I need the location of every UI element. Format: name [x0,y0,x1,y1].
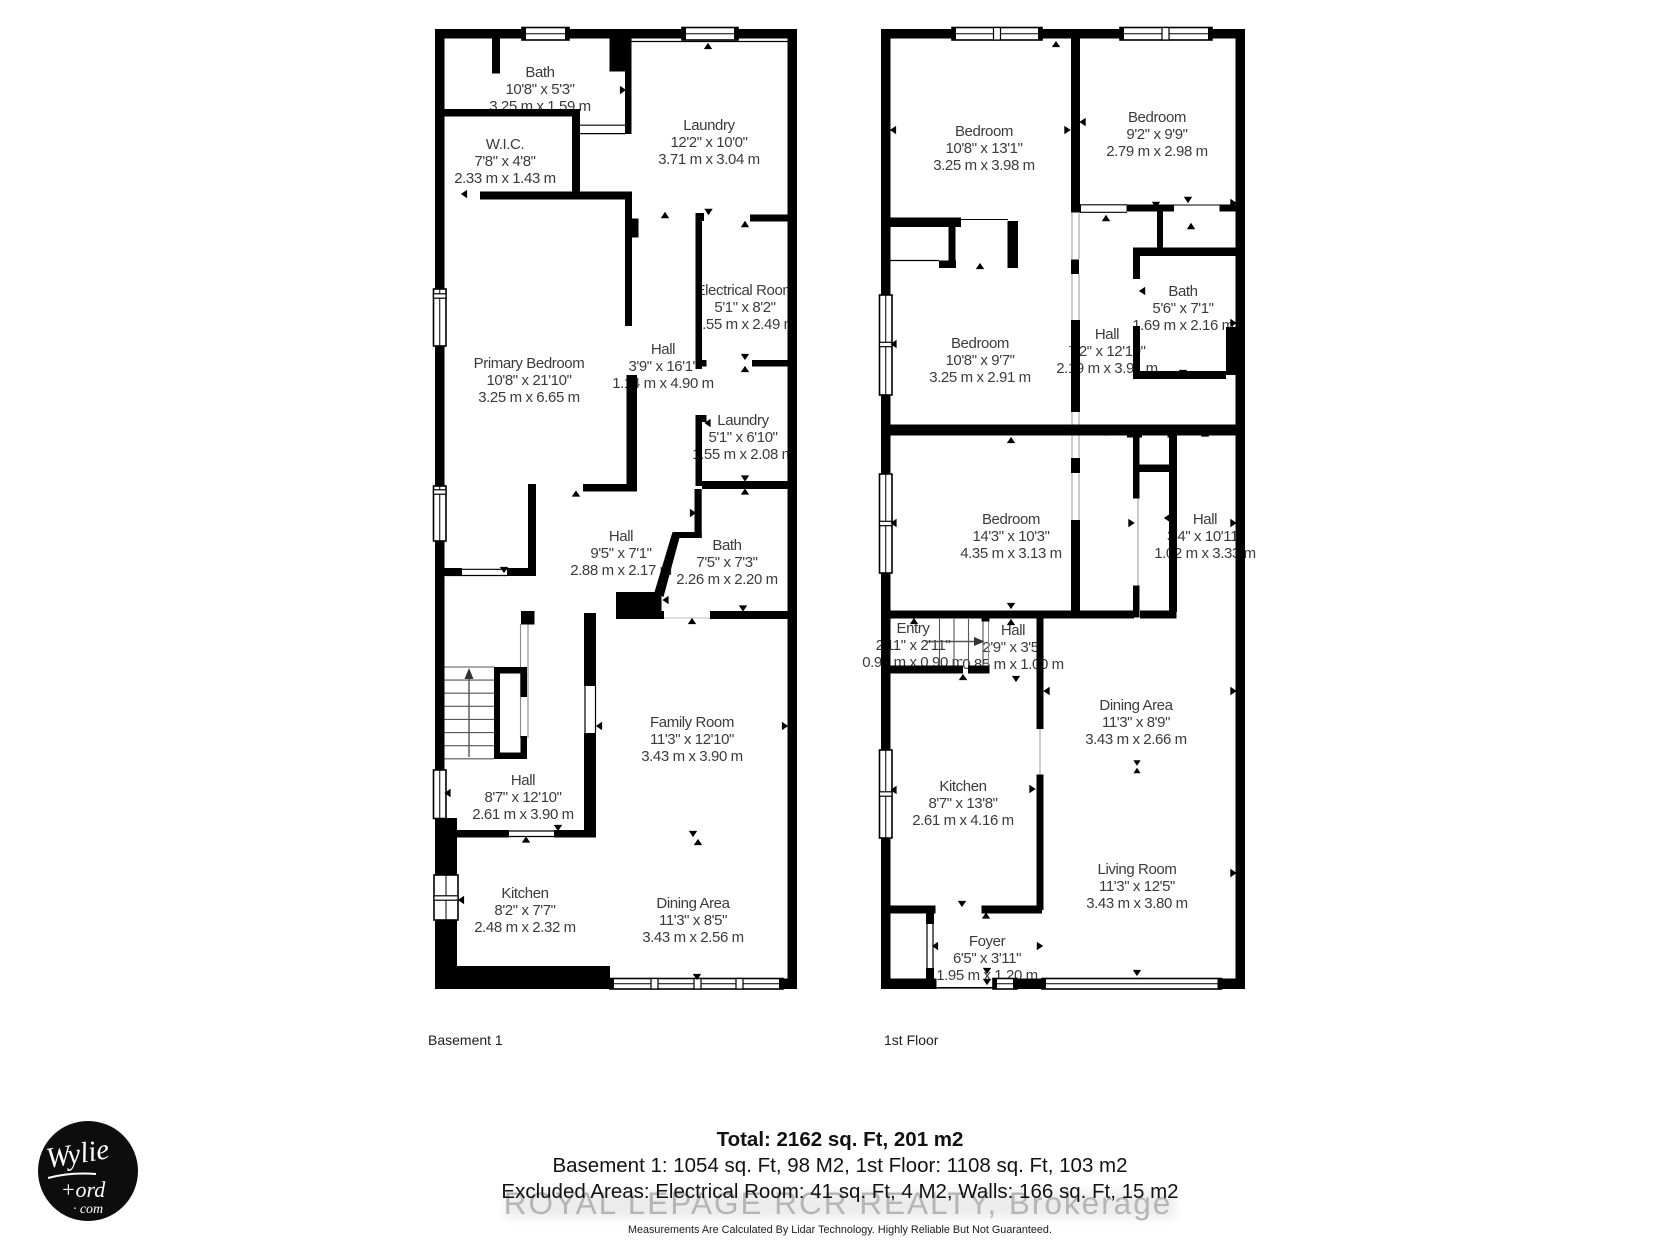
svg-text:1st Floor: 1st Floor [884,1032,939,1048]
svg-text:2'9" x 3'5": 2'9" x 3'5" [982,639,1043,656]
svg-text:Hall: Hall [651,341,675,358]
svg-text:2.48 m x 2.32 m: 2.48 m x 2.32 m [474,919,576,936]
svg-text:Primary Bedroom: Primary Bedroom [474,355,585,372]
svg-text:Family Room: Family Room [650,714,734,731]
svg-text:10'8" x 21'10": 10'8" x 21'10" [486,372,571,389]
svg-text:5'1" x 6'10": 5'1" x 6'10" [708,429,777,446]
svg-text:Hall: Hall [1193,511,1217,528]
svg-text:Living Room: Living Room [1098,861,1177,878]
svg-text:10'8" x 9'7": 10'8" x 9'7" [945,352,1014,369]
svg-text:5'1" x 8'2": 5'1" x 8'2" [714,299,775,316]
svg-text:1.55 m x 2.49 m: 1.55 m x 2.49 m [694,316,796,333]
svg-text:2.79 m x 2.98 m: 2.79 m x 2.98 m [1106,143,1208,160]
svg-text:Dining Area: Dining Area [1099,697,1173,714]
svg-text:3'9" x 16'1": 3'9" x 16'1" [628,358,697,375]
svg-text:14'3" x 10'3": 14'3" x 10'3" [972,528,1049,545]
svg-text:11'3" x 8'5": 11'3" x 8'5" [659,912,727,929]
svg-text:Kitchen: Kitchen [501,885,548,902]
svg-text:8'7" x 13'8": 8'7" x 13'8" [928,795,997,812]
svg-text:Bath: Bath [712,537,741,554]
svg-text:+ord: +ord [61,1177,107,1202]
svg-text:4.35 m x 3.13 m: 4.35 m x 3.13 m [960,545,1062,562]
svg-text:· com: · com [73,1202,103,1217]
svg-text:10'8" x 13'1": 10'8" x 13'1" [945,140,1022,157]
svg-text:3.71 m x 3.04 m: 3.71 m x 3.04 m [658,151,760,168]
svg-text:3.25 m x 6.65 m: 3.25 m x 6.65 m [478,389,580,406]
svg-text:7'5" x 7'3": 7'5" x 7'3" [696,554,757,571]
svg-text:Electrical Room: Electrical Room [695,282,794,299]
svg-text:2.88 m x 2.17 m: 2.88 m x 2.17 m [570,562,672,579]
svg-text:7'8" x 4'8": 7'8" x 4'8" [474,153,535,170]
svg-text:Dining Area: Dining Area [656,895,730,912]
svg-text:11'3" x 8'9": 11'3" x 8'9" [1102,714,1170,731]
svg-text:8'2" x 7'7": 8'2" x 7'7" [494,902,555,919]
svg-text:Hall: Hall [609,528,633,545]
svg-text:Kitchen: Kitchen [939,778,986,795]
svg-text:3.43 m x 2.56 m: 3.43 m x 2.56 m [642,929,744,946]
svg-text:10'8" x 5'3": 10'8" x 5'3" [505,81,574,98]
svg-text:11'3" x 12'5": 11'3" x 12'5" [1099,878,1175,895]
svg-text:9'2" x 9'9": 9'2" x 9'9" [1126,126,1187,143]
svg-text:Bedroom: Bedroom [1128,109,1186,126]
svg-text:Foyer: Foyer [969,933,1006,950]
svg-text:Hall: Hall [1095,326,1119,343]
svg-text:2.61 m x 3.90 m: 2.61 m x 3.90 m [472,806,574,823]
svg-text:Hall: Hall [511,772,535,789]
svg-text:3.43 m x 2.66 m: 3.43 m x 2.66 m [1085,731,1187,748]
svg-text:Bedroom: Bedroom [955,123,1013,140]
svg-text:3.43 m x 3.80 m: 3.43 m x 3.80 m [1086,895,1188,912]
svg-text:1.55 m x 2.08 m: 1.55 m x 2.08 m [692,446,794,463]
svg-text:Bath: Bath [1168,283,1197,300]
svg-text:3.25 m x 2.91 m: 3.25 m x 2.91 m [929,369,1031,386]
svg-text:12'2" x 10'0": 12'2" x 10'0" [670,134,747,151]
svg-text:Basement 1: Basement 1 [428,1032,503,1048]
svg-text:Measurements Are Calculated By: Measurements Are Calculated By Lidar Tec… [628,1224,1052,1236]
svg-text:3.43 m x 3.90 m: 3.43 m x 3.90 m [641,748,743,765]
svg-text:9'5" x 7'1": 9'5" x 7'1" [590,545,651,562]
svg-text:W.I.C.: W.I.C. [486,136,524,153]
svg-text:3.25 m x 3.98 m: 3.25 m x 3.98 m [933,157,1035,174]
svg-text:2.61 m x 4.16 m: 2.61 m x 4.16 m [912,812,1014,829]
svg-text:Basement 1: 1054 sq. Ft, 98 M2: Basement 1: 1054 sq. Ft, 98 M2, 1st Floo… [552,1154,1127,1177]
svg-text:Excluded Areas: Electrical Roo: Excluded Areas: Electrical Room: 41 sq. … [501,1180,1178,1203]
svg-text:Laundry: Laundry [683,117,735,134]
svg-text:Total: 2162 sq. Ft, 201 m2: Total: 2162 sq. Ft, 201 m2 [717,1128,964,1151]
svg-text:Bedroom: Bedroom [951,335,1009,352]
svg-text:Laundry: Laundry [717,412,769,429]
svg-text:8'7" x 12'10": 8'7" x 12'10" [484,789,561,806]
svg-text:1.69 m x 2.16 m: 1.69 m x 2.16 m [1132,317,1234,334]
svg-text:2.26 m x 2.20 m: 2.26 m x 2.20 m [676,571,778,588]
svg-text:5'6" x 7'1": 5'6" x 7'1" [1152,300,1213,317]
svg-text:Bath: Bath [525,64,554,81]
svg-text:Bedroom: Bedroom [982,511,1040,528]
svg-text:2.33 m x 1.43 m: 2.33 m x 1.43 m [454,170,556,187]
svg-text:11'3" x 12'10": 11'3" x 12'10" [650,731,734,748]
svg-text:3'4" x 10'11": 3'4" x 10'11" [1167,528,1243,545]
svg-text:6'5" x 3'11": 6'5" x 3'11" [953,950,1021,967]
